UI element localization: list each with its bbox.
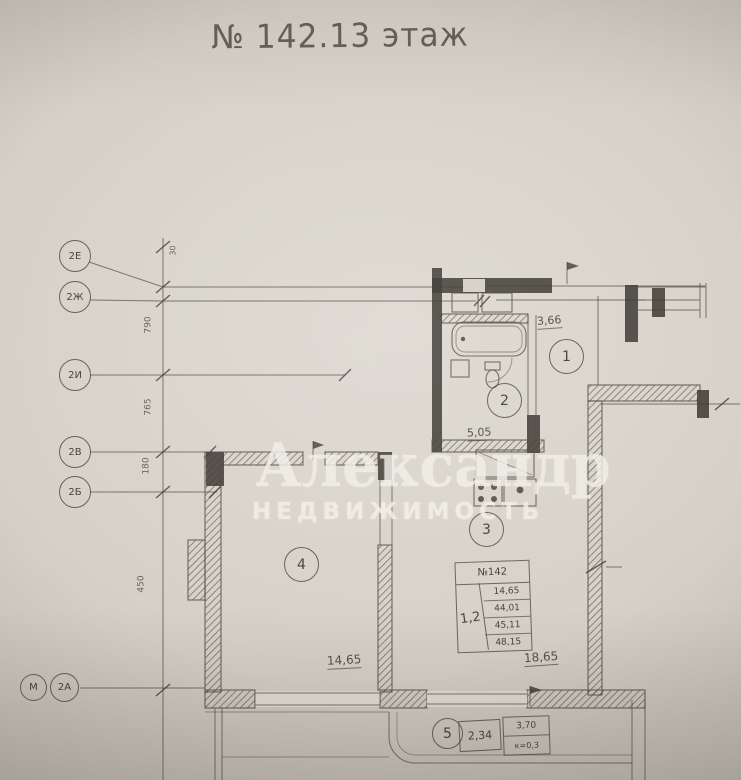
- dimension-label: 180: [142, 457, 152, 474]
- stove-icon: [474, 479, 502, 506]
- balcony-outline: [205, 700, 645, 780]
- area-label-room4: 14,65: [327, 652, 362, 670]
- dimension-label: 765: [144, 398, 154, 415]
- dimension-label: 450: [137, 575, 147, 592]
- apartment-number: №142: [455, 561, 529, 586]
- page-title: № 142.13 этаж: [178, 14, 501, 57]
- area-label-room3: 18,65: [523, 649, 558, 667]
- room-number: 3: [482, 522, 491, 538]
- axis-marker: 2Б: [59, 476, 91, 508]
- room-number: 2: [500, 393, 509, 409]
- axis-marker: М: [20, 674, 47, 701]
- axis-marker: 2Ж: [59, 281, 91, 313]
- table-value: 48,15: [485, 634, 532, 652]
- room-number: 1: [562, 349, 571, 365]
- room-number-circle: 1: [549, 339, 584, 374]
- kitchen-sink-icon: [504, 479, 536, 506]
- dimension-label: 790: [144, 316, 154, 333]
- room-number: 4: [297, 557, 306, 573]
- axis-marker: 2Е: [59, 240, 91, 272]
- room-number: 5: [443, 726, 452, 742]
- axis-label: 2В: [68, 447, 81, 458]
- washbasin-icon: [451, 360, 469, 377]
- axis-label: 2И: [68, 370, 82, 381]
- axis-marker: 2И: [59, 359, 91, 391]
- floor-plan-photo: № 142.13 этаж 2Е 2Ж 2И 2В 2Б М 2А 1 2 3 …: [0, 0, 741, 780]
- walls: [188, 268, 709, 708]
- axis-label: 2Б: [68, 487, 81, 498]
- axis-label: 2А: [58, 682, 71, 693]
- wardrobe-icon: [482, 293, 512, 312]
- wardrobe-icon: [452, 293, 478, 312]
- loggia-coefficient-table: 3,70 к=0,3: [502, 715, 550, 756]
- area-label-room5: 2,34: [458, 719, 502, 752]
- room-number-circle: 4: [284, 547, 319, 582]
- table-value: 45,11: [484, 617, 531, 636]
- area-label-room1: 3,66: [537, 313, 562, 330]
- area-label-room2: 5,05: [467, 425, 492, 441]
- axis-label: М: [29, 682, 38, 693]
- apartment-info-table: №142 1,2 14,65 44,01 45,11 48,15: [454, 560, 532, 654]
- loggia-area: 3,70: [503, 716, 549, 737]
- axis-label: 2Ж: [66, 292, 83, 303]
- loggia-coef: к=0,3: [504, 735, 550, 755]
- axis-marker: 2В: [59, 436, 91, 468]
- floorplan-linework: [0, 0, 741, 780]
- kitchen-counter-icon: [476, 450, 534, 477]
- table-value: 14,65: [483, 583, 530, 602]
- axis-marker: 2А: [50, 673, 79, 702]
- room-number-circle: 2: [487, 383, 522, 418]
- room-number-circle: 3: [469, 512, 504, 547]
- axis-label: 2Е: [69, 251, 82, 262]
- table-value: 44,01: [484, 600, 531, 619]
- dimension-label: 30: [169, 245, 178, 255]
